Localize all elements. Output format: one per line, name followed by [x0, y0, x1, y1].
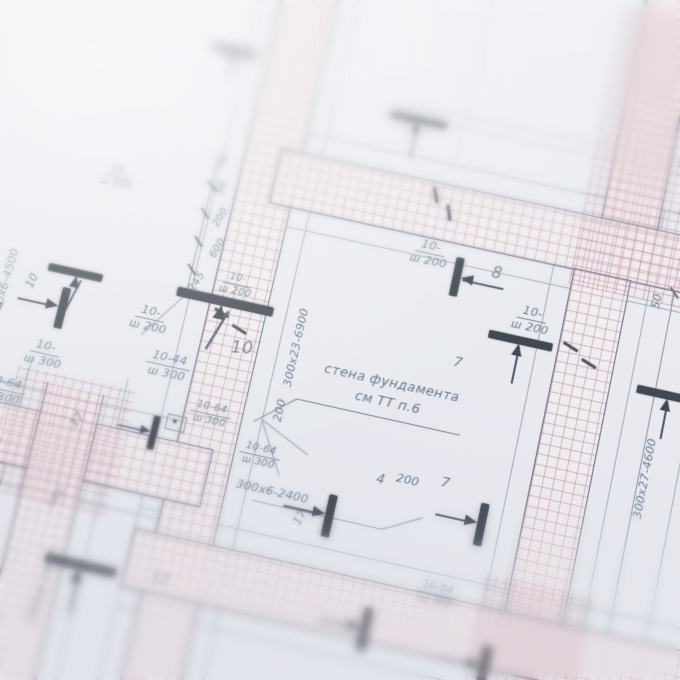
dimension-label: 200 — [395, 471, 421, 490]
arrowhead-icon — [69, 275, 81, 289]
rebar-callout: 10- ш 200 — [127, 300, 171, 338]
arrowhead-icon — [347, 619, 362, 633]
arrowhead-icon — [660, 397, 673, 412]
dimension-label: 200 — [271, 398, 290, 424]
rebar-callout: 10- ш 200 — [408, 235, 451, 273]
detail-symbol — [164, 413, 187, 433]
rebar-callout: 10- ш 200 — [99, 161, 137, 193]
arrowhead-icon — [140, 425, 152, 435]
blueprint-photo: стена фундамента см ТТ п.6 10- ш 200 10-… — [0, 0, 680, 680]
arrowhead-icon — [511, 342, 524, 356]
rebar-anchor-marker — [382, 110, 448, 165]
arrowhead-icon — [312, 506, 327, 519]
rebar-anchor-marker — [479, 330, 553, 393]
rebar-bar — [636, 385, 680, 407]
dimension-label: 300х6-2400 — [235, 477, 310, 507]
dimension-line — [382, 517, 423, 530]
detail-dot — [172, 419, 177, 424]
rebar-callout: 10-64 ш 300 — [236, 438, 282, 474]
rebar-position-label: 7 — [439, 474, 451, 492]
arrowhead-icon — [212, 303, 227, 320]
dimension-label: 300х27-4600 — [630, 437, 659, 520]
rebar-position-label: 4 — [375, 471, 386, 487]
rebar-callout: 10-64 ш 300 — [0, 370, 29, 410]
rebar-callout: 10- ш 200 — [510, 301, 553, 339]
foundation-wall-mesh-upper-right — [601, 0, 680, 230]
rebar-callout: 10-44 ш 300 — [142, 346, 194, 386]
arrowhead-icon — [45, 298, 60, 311]
arrowhead-icon — [228, 52, 237, 62]
rebar-position-label: 10 — [231, 337, 254, 358]
foundation-wall-mesh-bottom — [120, 527, 680, 680]
dimension-label: 50 — [648, 292, 664, 310]
rebar-anchor-marker — [206, 43, 257, 85]
arrowhead-icon — [460, 273, 474, 286]
arrowhead-icon — [464, 514, 479, 527]
rebar-position-label: 7 — [452, 354, 464, 371]
foundation-plan: стена фундамента см ТТ п.6 10- ш 200 10-… — [0, 0, 680, 680]
arrowhead-icon — [466, 657, 481, 671]
arrowhead-icon — [69, 567, 84, 584]
rebar-anchor-marker — [431, 493, 490, 546]
arrowhead-icon — [410, 121, 421, 134]
